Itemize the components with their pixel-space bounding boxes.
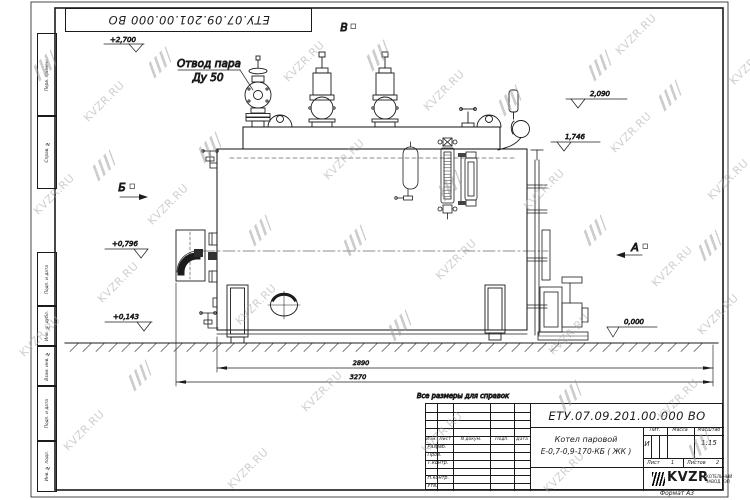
tb-lit-label: Лит. [649,428,660,433]
view-top-label: В [340,21,348,34]
steam-drum [243,127,500,149]
elev-0143: +0,143 [113,313,139,321]
tb-masshtab-value: 1:15 [701,439,717,447]
water-gauge-2 [458,152,477,206]
tb-col-izm: Изм. [426,437,437,442]
frame-cell-podp-data-1: Подп. и дата [37,252,57,307]
vent-valve [460,108,477,127]
elev-0796: +0,796 [112,240,138,248]
frame-cell-podp-data-2: Подп. и дата [37,385,57,442]
tb-lit-value: И [644,440,649,448]
tb-massa-label: Масса [672,428,687,433]
callout-line2: Ду 50 [191,72,223,84]
tb-row-nkontr: Н.контр. [428,476,449,481]
tb-row-prov: Пров. [428,453,442,458]
frame-cell-perv-primen: Перв. примен. [37,33,57,117]
front-wall-fittings [200,150,219,328]
frame-cell-sprav-no: Справ. № [37,115,57,189]
elev-0000: 0,000 [624,318,645,326]
lifting-lugs [268,115,501,127]
feed-pump [538,277,588,340]
frame-cell-vzam-inv: Взам. инв. № [37,345,57,387]
top-stamp-box: ЕТУ.07.09.201.00.000 ВО [65,8,312,32]
tb-listov-label: Листов [687,460,706,466]
callout-line1: Отвод пара [177,58,241,70]
view-left-label: Б [118,181,126,194]
dimensions: 2890 3270 [176,283,713,386]
tb-logo-text: KVZR [667,470,709,485]
ground-line [65,343,718,352]
tb-col-data: Дата [516,437,528,442]
title-block: Изм. Лист N докум. Подп. Дата Разраб. Пр… [425,403,723,490]
elev-2700: +2,700 [110,36,136,44]
view-right-label: А [630,241,639,254]
tb-product-name-2: Е-0,7-0,9-170-КБ ( ЖК ) [541,447,632,456]
pressure-gauge [498,90,530,150]
tb-listov-value: 2 [716,460,719,466]
tb-col-list: Лист [439,437,450,442]
kvzr-coil-icon [652,472,665,486]
tb-masshtab-label: Масштаб [698,428,721,433]
right-wall-pipe [527,150,550,335]
feed-bottle [395,142,418,200]
tb-document-number: ЕТУ.07.09.201.00.000 ВО [548,409,705,423]
steam-outlet-valve [245,56,271,127]
frame-cell-inv-dubl: Инв. № дубл. [37,305,57,347]
water-gauge-1 [438,138,457,219]
safety-valve [372,52,398,127]
steam-outlet-callout: Отвод пара Ду 50 [177,58,253,90]
tb-row-tkontr: Т.контр. [428,461,449,466]
dim-2890: 2890 [353,359,370,367]
frame-cell-inv-podl: Инв. № подл. [37,440,57,492]
dim-3270: 3270 [350,373,367,381]
elev-1746: 1,746 [565,133,586,141]
tb-col-ndoc: N докум. [461,437,482,442]
tb-list-value: 1 [671,460,674,466]
reference-note: Все размеры для справок [417,392,510,400]
top-stamp-number: ЕТУ.07.09.201.00.000 ВО [108,13,270,27]
manhole [268,291,300,319]
tb-row-razrab: Разраб. [428,445,447,450]
elevation-marks: +2,700 2,090 1,746 +0,796 +0,143 0,000 [104,36,657,337]
boiler-body [203,149,548,334]
safety-valve [309,52,335,127]
format-note: Формат А3 [617,490,737,497]
tb-product-name-1: Котел паровой [555,435,618,444]
tb-list-label: Лист [647,460,660,466]
drawing-sheet: Отвод пара Ду 50 В Б А +2,700 2,090 1,74… [0,0,750,500]
tb-logo-sub2: ЗАВОД РЭП [706,479,730,484]
tb-row-utv: Утв. [428,484,438,489]
burner-elbow [176,230,205,281]
elev-2090: 2,090 [590,90,611,98]
tb-col-podp: Подп. [495,437,509,442]
